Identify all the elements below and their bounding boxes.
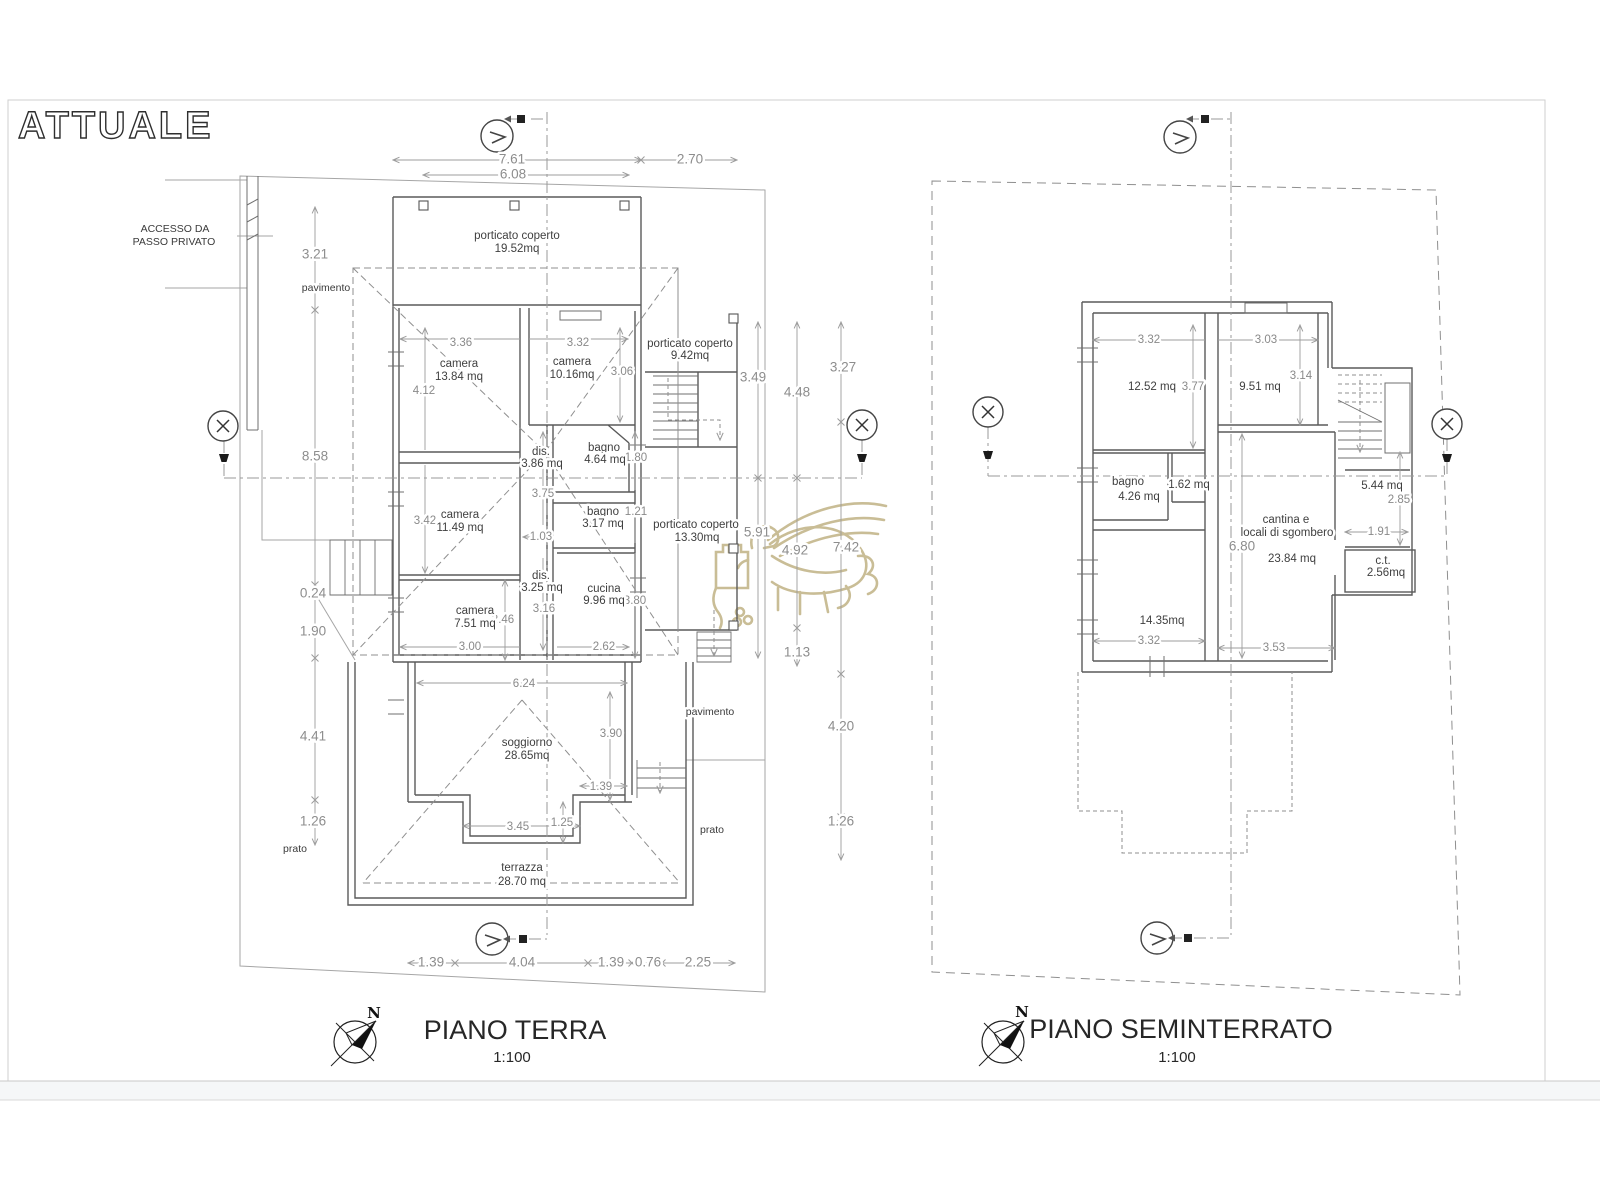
room-area: 5.44 mq bbox=[1361, 480, 1403, 492]
dim-label: 6.08 bbox=[500, 167, 526, 182]
floorplan-canvas: ATTUALE bbox=[0, 0, 1600, 1200]
dim-label: 0.24 bbox=[300, 586, 327, 601]
drawing-sheet: ATTUALE bbox=[0, 0, 1600, 1200]
piano-terra-lot-boundary bbox=[165, 176, 765, 992]
site-label: prato bbox=[700, 824, 724, 836]
dim-label: 3.77 bbox=[1182, 381, 1204, 393]
dim-label: 3.45 bbox=[507, 821, 529, 833]
piano-seminterrato-plan: 3.32 3.03 3.77 3.14 6.80 2.85 1.91 3.32 … bbox=[932, 112, 1462, 1066]
room-label: camera bbox=[441, 509, 480, 521]
dim-label: 3.14 bbox=[1290, 370, 1313, 382]
site-label: prato bbox=[283, 843, 307, 855]
dim-label: 1.39 bbox=[598, 955, 624, 970]
compass-north-label: N bbox=[367, 1004, 381, 1022]
dim-label: 3.21 bbox=[302, 247, 328, 262]
compass-icon bbox=[979, 1021, 1024, 1066]
piano-terra-plan: 7.61 2.70 6.08 3.21 8.58 0.24 1.90 4.41 … bbox=[133, 112, 877, 1066]
winged-lion-watermark bbox=[713, 503, 886, 628]
sheet-title: ATTUALE bbox=[18, 105, 214, 147]
room-area: 3.17 mq bbox=[582, 518, 624, 530]
piano-terra-dim-labels: 7.61 2.70 6.08 3.21 8.58 0.24 1.90 4.41 … bbox=[300, 152, 859, 970]
dim-label: 1.91 bbox=[1368, 526, 1390, 538]
room-area: 28.70 mq bbox=[498, 876, 546, 888]
dim-label: 5.91 bbox=[744, 525, 770, 540]
dim-label: 1.90 bbox=[300, 624, 326, 639]
dim-label: 2.62 bbox=[593, 641, 615, 653]
site-label: pavimento bbox=[686, 706, 735, 718]
dim-label: 7.42 bbox=[833, 540, 859, 555]
piano-seminterrato-lot-boundary bbox=[932, 181, 1460, 995]
plan-title-piano-seminterrato: PIANO SEMINTERRATO bbox=[1029, 1014, 1333, 1044]
dim-label: 6.24 bbox=[513, 678, 536, 690]
room-area: 14.35mq bbox=[1140, 615, 1185, 627]
piano-seminterrato-labels: 3.32 3.03 3.77 3.14 6.80 2.85 1.91 3.32 … bbox=[1112, 334, 1410, 654]
dim-label: 1.25 bbox=[551, 817, 573, 829]
dim-label: 4.41 bbox=[300, 729, 326, 744]
room-area: 10.16mq bbox=[550, 369, 595, 381]
room-area: 12.52 mq bbox=[1128, 381, 1176, 393]
dim-label: 1.26 bbox=[300, 814, 326, 829]
dim-label: 3.32 bbox=[567, 337, 589, 349]
room-label: c.t. bbox=[1375, 555, 1390, 567]
dim-label: 3.16 bbox=[533, 603, 555, 615]
dim-label: 1.21 bbox=[625, 506, 647, 518]
room-label: cucina bbox=[587, 583, 621, 595]
room-area: 1.62 mq bbox=[1168, 479, 1210, 491]
room-label: bagno bbox=[1112, 476, 1144, 488]
room-label: dis. bbox=[532, 446, 550, 458]
dim-label: 3.36 bbox=[450, 337, 472, 349]
dim-label: 4.20 bbox=[828, 719, 854, 734]
room-label: camera bbox=[440, 358, 479, 370]
dim-label: 3.49 bbox=[740, 370, 766, 385]
room-area: 2.56mq bbox=[1367, 567, 1405, 579]
room-label: cantina e bbox=[1263, 514, 1310, 526]
room-label: bagno bbox=[587, 506, 619, 518]
dim-label: 4.04 bbox=[509, 955, 536, 970]
room-area: 3.86 mq bbox=[521, 458, 563, 470]
room-label: camera bbox=[456, 605, 495, 617]
room-label: camera bbox=[553, 356, 592, 368]
compass-icon bbox=[331, 1021, 376, 1066]
dim-label: 1.39 bbox=[590, 781, 612, 793]
dim-label: 3.75 bbox=[532, 488, 554, 500]
plan-scale: 1:100 bbox=[1158, 1049, 1196, 1066]
dim-label: 1.03 bbox=[530, 531, 552, 543]
dim-label: 0.76 bbox=[635, 955, 661, 970]
dim-label: 3.27 bbox=[830, 360, 856, 375]
plan-scale: 1:100 bbox=[493, 1049, 531, 1066]
room-area: 9.51 mq bbox=[1239, 381, 1281, 393]
piano-terra-site-labels: ACCESSO DA PASSO PRIVATO pavimento prato… bbox=[133, 223, 735, 855]
dim-label: 3.00 bbox=[459, 641, 481, 653]
dim-label: 8.58 bbox=[302, 449, 328, 464]
dim-label: 2.25 bbox=[685, 955, 711, 970]
dim-label: 2.85 bbox=[1388, 494, 1410, 506]
room-area: 23.84 mq bbox=[1268, 553, 1316, 565]
room-area: 9.42mq bbox=[671, 350, 709, 362]
room-area: 4.64 mq bbox=[584, 454, 626, 466]
dim-label: 4.12 bbox=[413, 385, 435, 397]
compass-north-label: N bbox=[1015, 1003, 1029, 1021]
plan-title-piano-terra: PIANO TERRA bbox=[424, 1015, 607, 1045]
dim-label: 3.06 bbox=[611, 366, 633, 378]
dim-label: 1.80 bbox=[625, 452, 647, 464]
room-label: porticato coperto bbox=[474, 230, 560, 242]
room-area: 9.96 mq bbox=[583, 595, 625, 607]
dim-label: 7.61 bbox=[499, 152, 525, 167]
room-area: 3.25 mq bbox=[521, 582, 563, 594]
section-x-marker bbox=[208, 411, 238, 441]
dim-label: 3.32 bbox=[1138, 635, 1160, 647]
dim-label: 4.92 bbox=[782, 543, 808, 558]
dim-label: 3.90 bbox=[600, 728, 622, 740]
room-label: locali di sgombero bbox=[1241, 527, 1334, 539]
room-area: 13.84 mq bbox=[435, 371, 483, 383]
dim-label: 1.13 bbox=[784, 645, 810, 660]
site-label: ACCESSO DA bbox=[141, 223, 210, 235]
site-label: pavimento bbox=[302, 282, 351, 294]
room-area: 11.49 mq bbox=[436, 522, 483, 534]
dim-label: 2.70 bbox=[677, 152, 703, 167]
dim-label: 4.48 bbox=[784, 385, 810, 400]
dim-label: 3.80 bbox=[624, 595, 646, 607]
room-area: 13.30mq bbox=[675, 532, 720, 544]
room-label: bagno bbox=[588, 442, 620, 454]
site-label: PASSO PRIVATO bbox=[133, 236, 216, 248]
room-area: 7.51 mq bbox=[454, 618, 496, 630]
dim-label: 6.80 bbox=[1229, 539, 1255, 554]
piano-terra-walls bbox=[348, 197, 738, 905]
dim-label: 3.42 bbox=[414, 515, 436, 527]
dim-label: 3.03 bbox=[1255, 334, 1277, 346]
room-label: dis. bbox=[532, 570, 550, 582]
dim-label: 3.53 bbox=[1263, 642, 1285, 654]
room-label: terrazza bbox=[501, 862, 543, 874]
terrace-footprint-dashed bbox=[1078, 672, 1292, 853]
dim-label: 1.26 bbox=[828, 814, 854, 829]
room-label: porticato coperto bbox=[647, 338, 733, 350]
dim-label: 1.39 bbox=[418, 955, 444, 970]
dim-label: 3.32 bbox=[1138, 334, 1160, 346]
room-area: 28.65mq bbox=[505, 750, 550, 762]
room-label: soggiorno bbox=[502, 737, 553, 749]
room-area: 19.52mq bbox=[495, 243, 540, 255]
room-area: 4.26 mq bbox=[1118, 491, 1160, 503]
room-label: porticato coperto bbox=[653, 519, 739, 531]
